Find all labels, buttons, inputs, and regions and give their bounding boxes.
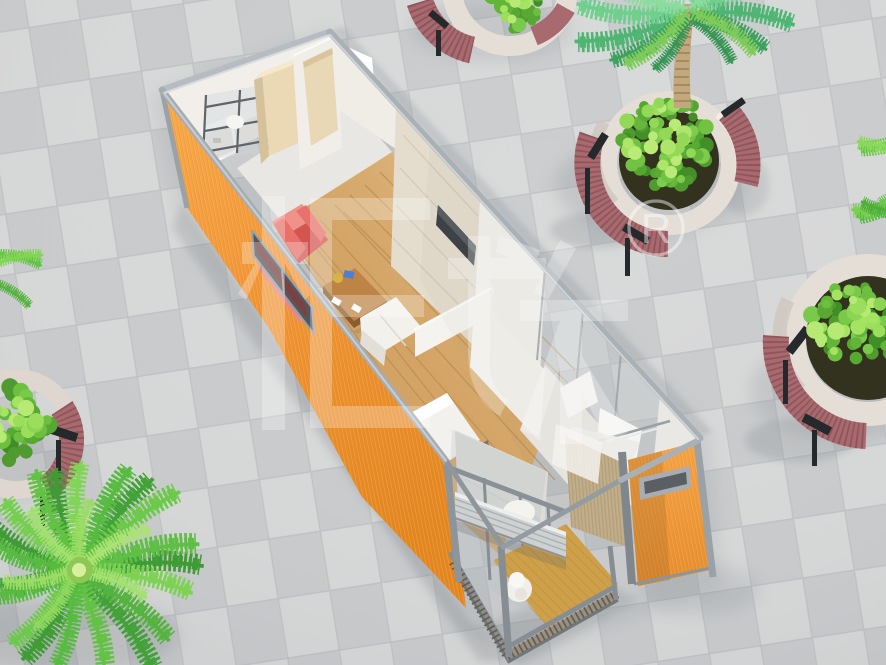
svg-text:R: R <box>641 205 671 252</box>
